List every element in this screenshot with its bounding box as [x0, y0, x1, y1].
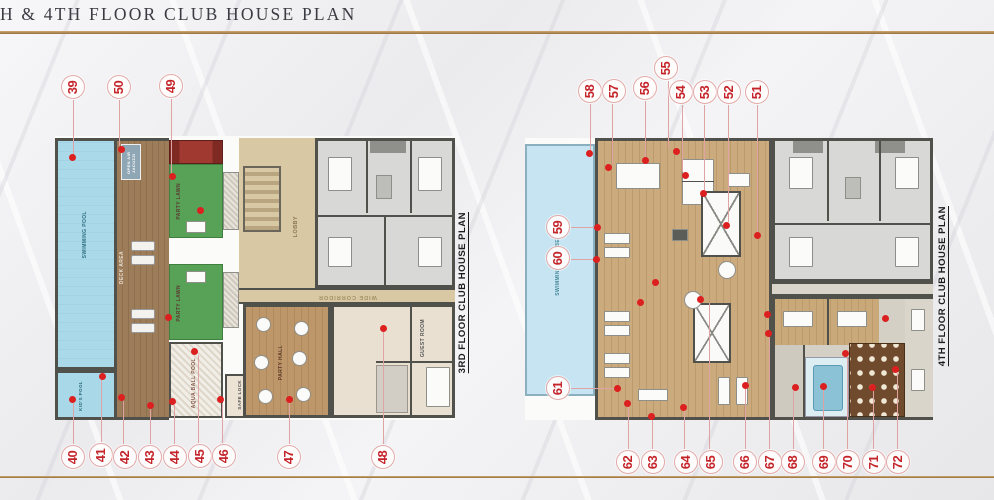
callout-62: 62 [616, 450, 640, 474]
callout-40: 40 [61, 445, 85, 469]
callout-44: 44 [163, 445, 187, 469]
dining-table [376, 175, 392, 199]
callout-51: 51 [745, 80, 769, 104]
marker-dot [869, 384, 876, 391]
callout-50: 50 [107, 75, 131, 99]
marker-dot [820, 383, 827, 390]
swimming-pool-label: SWIMMING POOL [82, 211, 88, 258]
corridor [772, 282, 933, 296]
callout-71: 71 [862, 450, 886, 474]
safe-lock-label: SAFE LOCK [237, 380, 243, 410]
massage-bed [837, 311, 867, 327]
leader-line [571, 259, 593, 260]
gym-machine [604, 233, 630, 244]
elevator-shaft [701, 191, 741, 257]
round-table [296, 387, 311, 402]
floor-plan-page: H & 4TH FLOOR CLUB HOUSE PLAN SWIMMING P… [0, 0, 994, 500]
gym-machine [604, 311, 630, 322]
marker-dot [286, 396, 293, 403]
gym-machine [604, 353, 630, 364]
marker-dot [169, 173, 176, 180]
marker-dot [118, 146, 125, 153]
counter-strip [223, 272, 239, 328]
party-hall-label: PARTY HALL [278, 345, 284, 380]
inner-wall [827, 299, 829, 345]
utility-strip [905, 299, 933, 417]
gold-divider-top [0, 31, 994, 34]
wide-corridor-label: WIDE CORRIDOR [318, 293, 377, 300]
balcony [793, 141, 823, 153]
leader-line [628, 407, 629, 449]
marker-dot [742, 382, 749, 389]
marker-dot [624, 400, 631, 407]
fixture [911, 309, 925, 331]
counter-strip [223, 172, 239, 230]
marker-dot [197, 207, 204, 214]
leader-line [873, 391, 874, 449]
gold-divider-bottom [0, 476, 994, 478]
leader-line [612, 104, 613, 164]
leader-line [119, 100, 120, 146]
kids-pool-label: KID'S POOL [78, 381, 84, 411]
gym-machine [604, 367, 630, 378]
callout-68: 68 [781, 450, 805, 474]
leader-line [769, 337, 770, 449]
callout-46: 46 [212, 444, 236, 468]
marker-dot [700, 190, 707, 197]
marker-dot [842, 350, 849, 357]
marker-dot [765, 330, 772, 337]
marker-dot [614, 385, 621, 392]
callout-63: 63 [641, 450, 665, 474]
marker-dot [648, 413, 655, 420]
inner-wall [775, 223, 930, 225]
marker-dot [682, 172, 689, 179]
gym-machine [604, 325, 630, 336]
games-counter [728, 173, 750, 187]
party-lawn-lower: PARTY LAWN [169, 264, 223, 340]
fourth-floor-plan-label: 4TH FLOOR CLUB HOUSE PLAN [937, 206, 948, 366]
leader-line [174, 405, 175, 444]
third-floor-plan: SWIMMING POOL KID'S POOL DECK AREA OPEN … [55, 136, 455, 420]
inner-wall [410, 141, 412, 213]
changing-room [775, 345, 805, 417]
fixture [911, 369, 925, 391]
callout-57: 57 [602, 79, 626, 103]
leader-line [652, 420, 653, 449]
marker-dot [754, 232, 761, 239]
round-table [254, 355, 269, 370]
leader-line [571, 388, 614, 389]
marker-dot [605, 164, 612, 171]
callout-69: 69 [812, 450, 836, 474]
callout-61: 61 [546, 376, 570, 400]
marker-dot [882, 315, 889, 322]
deck-lounger [131, 241, 155, 251]
marker-dot [892, 366, 899, 373]
callout-58: 58 [578, 79, 602, 103]
lobby: LOBBY [239, 138, 315, 288]
planter-box [186, 271, 206, 283]
callout-55: 55 [654, 56, 678, 80]
bathroom [376, 365, 408, 413]
dining-table [845, 177, 861, 199]
planter-box [186, 221, 206, 233]
pantry-counter [672, 229, 688, 241]
leader-line [847, 357, 848, 449]
leader-line [383, 332, 384, 444]
callout-48: 48 [371, 445, 395, 469]
treadmill [718, 377, 730, 405]
leader-line [823, 390, 824, 449]
marker-dot [697, 296, 704, 303]
deck-lounger [131, 323, 155, 333]
marker-dot [191, 348, 198, 355]
marker-dot [69, 396, 76, 403]
bed [418, 157, 442, 191]
leader-line [728, 105, 729, 222]
leader-line [590, 104, 591, 150]
marker-dot [147, 402, 154, 409]
marker-dot [99, 373, 106, 380]
callout-41: 41 [89, 443, 113, 467]
callout-66: 66 [733, 450, 757, 474]
marker-dot [593, 256, 600, 263]
callout-64: 64 [674, 450, 698, 474]
inner-wall [366, 141, 368, 213]
party-lawn-upper: PARTY LAWN [169, 164, 223, 238]
marker-dot [637, 299, 644, 306]
bed [426, 367, 450, 407]
guest-room-label: GUEST ROOM [420, 319, 426, 357]
marker-dot [217, 396, 224, 403]
leader-line [684, 411, 685, 449]
bed [328, 237, 352, 267]
round-table [292, 351, 307, 366]
table-tennis-net [682, 181, 714, 182]
marker-dot [380, 325, 387, 332]
aqua-ball-pool-label: AQUA BALL POOL [191, 358, 197, 408]
marker-dot [594, 224, 601, 231]
callout-52: 52 [717, 80, 741, 104]
callout-70: 70 [836, 450, 860, 474]
deck-lounger [131, 309, 155, 319]
leader-line [571, 227, 594, 228]
leader-line [704, 105, 705, 190]
third-floor-plan-label: 3RD FLOOR CLUB HOUSE PLAN [457, 212, 468, 373]
club-house-hall [595, 138, 772, 420]
callout-45: 45 [188, 444, 212, 468]
leader-line [897, 373, 898, 449]
marker-dot [169, 398, 176, 405]
leader-line [745, 389, 746, 449]
balcony [370, 141, 406, 153]
marker-dot [792, 384, 799, 391]
callout-42: 42 [113, 445, 137, 469]
marker-dot [673, 148, 680, 155]
leader-line [757, 105, 758, 232]
leader-line [123, 401, 124, 444]
bed [418, 237, 442, 267]
marker-dot [764, 311, 771, 318]
guest-room: GUEST ROOM [331, 304, 455, 418]
leader-line [793, 391, 794, 449]
bed [895, 157, 919, 189]
leader-line [73, 403, 74, 444]
pergola-roof [169, 140, 223, 164]
marker-dot [642, 157, 649, 164]
staircase [243, 166, 281, 232]
callout-49: 49 [159, 74, 183, 98]
page-title: H & 4TH FLOOR CLUB HOUSE PLAN [0, 4, 356, 25]
party-lawn-label: PARTY LAWN [176, 183, 182, 220]
leader-line [709, 303, 710, 449]
massage-rooms [775, 299, 879, 345]
swimming-pool: SWIMMING POOL [55, 138, 117, 370]
callout-53: 53 [693, 80, 717, 104]
marker-dot [165, 314, 172, 321]
leader-line [222, 403, 223, 443]
leader-line [73, 100, 74, 155]
open-air-jacuzzi-label: OPEN AIR JACUZZI [126, 147, 136, 179]
gym-machine [604, 247, 630, 258]
marker-dot [118, 394, 125, 401]
marker-dot [723, 222, 730, 229]
bed [789, 157, 813, 189]
elevator-shaft [693, 303, 731, 363]
marker-dot [69, 154, 76, 161]
round-table [256, 317, 271, 332]
jacuzzi-tub [813, 365, 843, 411]
party-lawn-label: PARTY LAWN [176, 285, 182, 322]
billiards-table [616, 163, 660, 189]
callout-65: 65 [699, 450, 723, 474]
lobby-label: LOBBY [293, 216, 300, 237]
deck-area-label: DECK AREA [119, 251, 125, 284]
jacuzzi-room [805, 357, 849, 417]
leader-line [171, 99, 172, 173]
kids-pool: KID'S POOL [55, 370, 117, 420]
inner-wall [384, 217, 386, 285]
marker-dot [586, 150, 593, 157]
leader-line [682, 105, 683, 172]
inner-wall [827, 141, 829, 221]
leader-line [101, 380, 102, 442]
round-table [294, 321, 309, 336]
bed [895, 237, 919, 267]
callout-72: 72 [886, 450, 910, 474]
callout-39: 39 [61, 75, 85, 99]
round-table [718, 261, 736, 279]
deck-lounger [131, 255, 155, 265]
leader-line [289, 403, 290, 444]
bench [638, 389, 668, 401]
deck-area: DECK AREA [117, 138, 169, 420]
fourth-floor-plan: SWIMMING POOL BELOW [525, 138, 933, 420]
callout-54: 54 [669, 80, 693, 104]
leader-line [198, 355, 199, 443]
swimming-pool-below: SWIMMING POOL BELOW [525, 144, 595, 396]
callout-56: 56 [633, 76, 657, 100]
inner-wall [376, 361, 454, 363]
inner-wall [879, 141, 881, 221]
marker-dot [652, 279, 659, 286]
leader-line [150, 409, 151, 444]
leader-line [645, 101, 646, 157]
marker-dot [680, 404, 687, 411]
massage-bed [783, 311, 813, 327]
bed [789, 237, 813, 267]
callout-60: 60 [546, 246, 570, 270]
callout-43: 43 [138, 445, 162, 469]
apartment-units [315, 138, 455, 288]
bed [328, 157, 352, 191]
callout-47: 47 [277, 445, 301, 469]
apartment-units [772, 138, 933, 282]
callout-67: 67 [758, 450, 782, 474]
round-table [258, 389, 273, 404]
wide-corridor: WIDE CORRIDOR [239, 288, 455, 304]
wellness-wing [772, 296, 933, 420]
callout-59: 59 [546, 215, 570, 239]
